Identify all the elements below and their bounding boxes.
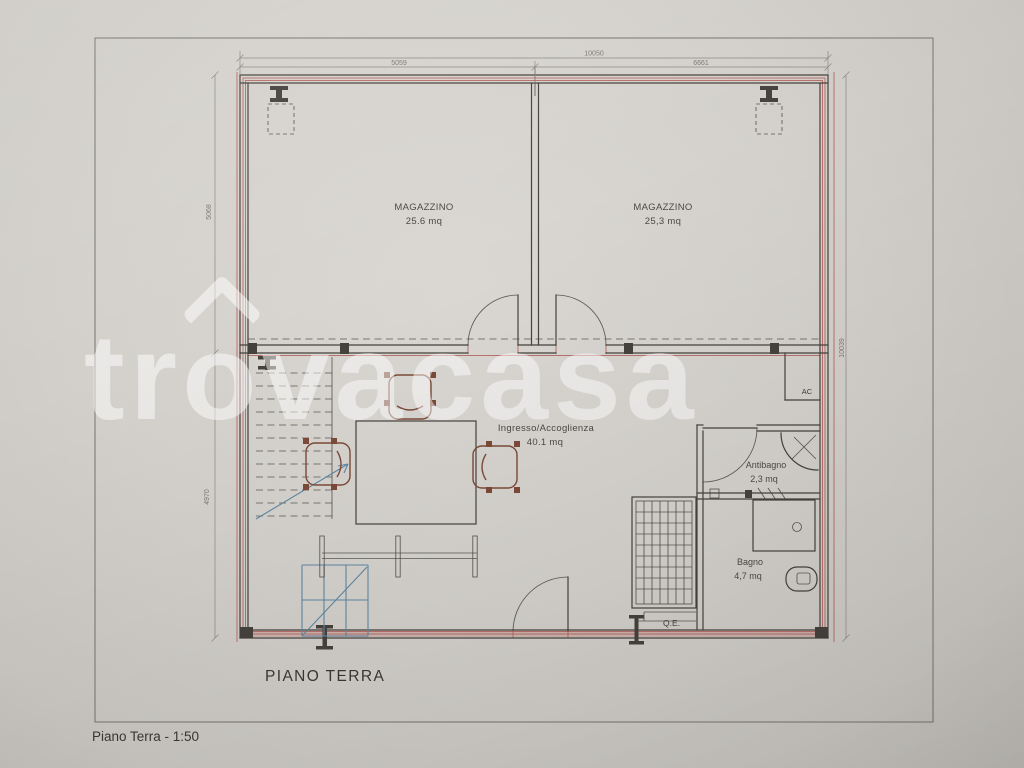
washbasin-counter: [753, 500, 815, 551]
corner-sink: [781, 433, 818, 470]
ingresso-area: 40.1 mq: [527, 437, 563, 448]
chair-top: [384, 372, 436, 419]
dim-top-right: 6661: [693, 60, 709, 67]
magazzino-right-name: MAGAZZINO: [633, 202, 692, 213]
ac-label: AC: [802, 387, 813, 396]
reception-table: [356, 421, 476, 524]
bagno-name: Bagno: [737, 557, 763, 567]
bagno-area: 4,7 mq: [734, 571, 762, 581]
magazzino-right-area: 25,3 mq: [645, 216, 681, 227]
dimension-lines: [212, 51, 850, 642]
center-dividing-wall: [532, 83, 539, 345]
entrance-door: [513, 577, 568, 631]
column-top-left: [268, 86, 294, 134]
perimeter-walls: [240, 75, 828, 638]
antibagno-name: Antibagno: [746, 460, 787, 470]
antibagno-area: 2,3 mq: [750, 474, 778, 484]
radiator-grid: [632, 497, 696, 630]
ingresso-name: Ingresso/Accoglienza: [498, 423, 595, 434]
dim-top-total: 10050: [584, 51, 604, 58]
plan-title: PIANO TERRA: [265, 668, 385, 685]
antibagno-door: [703, 428, 757, 482]
magazzino-left-area: 25.6 mq: [406, 216, 442, 227]
chair-right: [473, 441, 520, 493]
mid-wall: [240, 339, 828, 354]
photo-background: 10050 5059 6661 5068 4970 10039 MAGAZZIN…: [0, 0, 1024, 768]
magazzino-left-door: [468, 295, 518, 345]
room-label-antibagno: Antibagno 2,3 mq: [746, 460, 787, 484]
scale-footer: Piano Terra - 1:50: [92, 729, 199, 744]
dim-right-total: 10039: [839, 338, 846, 358]
magazzino-left-name: MAGAZZINO: [394, 202, 453, 213]
floorplan-svg: 10050 5059 6661 5068 4970 10039 MAGAZZIN…: [0, 0, 1024, 768]
room-label-bagno: Bagno 4,7 mq: [734, 557, 763, 581]
magazzino-right-door: [556, 295, 606, 345]
room-label-ingresso: Ingresso/Accoglienza 40.1 mq: [498, 423, 595, 448]
dim-top-left: 5059: [391, 60, 407, 67]
shelf-partition: [320, 536, 477, 577]
staircase-dashed-treads: [256, 356, 332, 519]
room-label-magazzino-right: MAGAZZINO 25,3 mq: [633, 202, 692, 227]
dim-left-upper: 5068: [206, 204, 213, 220]
column-top-right: [756, 86, 782, 134]
room-label-magazzino-left: MAGAZZINO 25.6 mq: [394, 202, 453, 227]
dim-left-lower: 4970: [204, 489, 211, 505]
toilet: [786, 567, 817, 591]
qe-label: Q.E.: [663, 618, 680, 628]
